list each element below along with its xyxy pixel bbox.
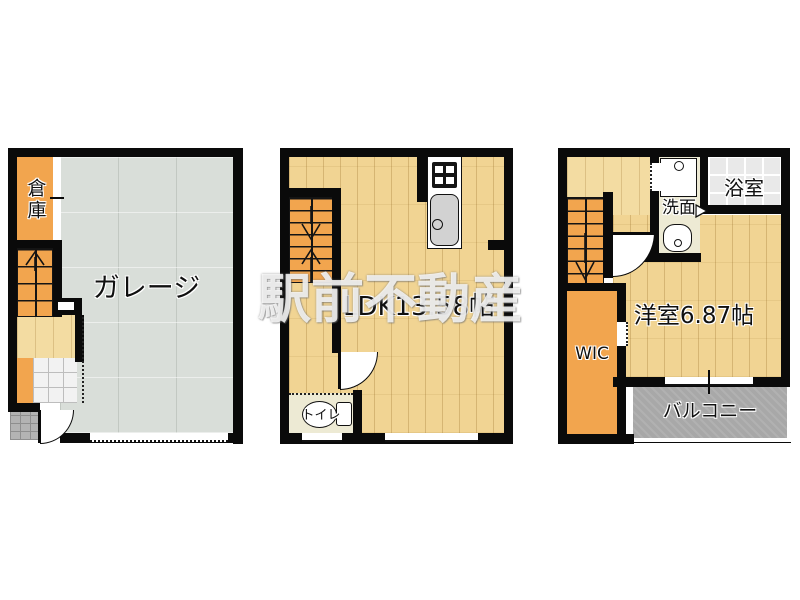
wall-segment [8, 403, 40, 412]
window-opening [385, 433, 478, 442]
washbasin-icon [660, 158, 697, 197]
balcony-sill [633, 438, 791, 443]
wall-segment [8, 240, 62, 248]
wall-segment [8, 148, 17, 412]
wall-segment [603, 192, 613, 278]
wall-segment [280, 148, 513, 157]
entrance-door-leaf [38, 410, 41, 443]
faucet-icon [432, 219, 443, 230]
stairs-up-arrow-icon [22, 250, 48, 272]
balcony-label: バルコニー [633, 396, 787, 423]
garage-shutter-opening [90, 433, 228, 442]
bathroom-label: 浴室 [702, 172, 786, 201]
watermark: 駅前不動産 [258, 270, 530, 334]
wall-segment [558, 434, 634, 444]
wall-segment [700, 205, 790, 214]
toilet-bowl-icon [663, 224, 692, 252]
wall-segment [353, 390, 362, 433]
washroom-label: 洗面 [650, 193, 708, 218]
faucet-icon [674, 161, 684, 171]
washroom-door-opening [650, 163, 661, 191]
ldk-door-leaf [338, 352, 341, 389]
entry-tile-floor [33, 358, 77, 403]
floor-plan-1f: ガレージ 倉庫 [8, 148, 243, 444]
wall-segment [417, 157, 427, 202]
stairs-down-arrow-icon [298, 206, 324, 242]
floor-plan-3f: 洗面 浴室 洋室6.87帖 WIC バルコニー [558, 148, 793, 444]
garage-label: ガレージ [60, 266, 233, 305]
wall-segment [558, 148, 790, 157]
wall-segment [8, 148, 243, 157]
floorplan-image: ガレージ 倉庫 [0, 0, 800, 600]
wall-segment [280, 188, 341, 197]
western-room-label: 洋室6.87帖 [618, 296, 770, 330]
toilet-label: トイレ [289, 404, 353, 423]
wall-segment [233, 148, 243, 444]
toilet-drain-icon [674, 239, 682, 247]
window-opening [302, 433, 342, 442]
entrance-porch [10, 412, 38, 440]
window-tick [708, 370, 710, 394]
storage-label: 倉庫 [19, 162, 53, 238]
kitchen-sink-icon [430, 194, 459, 246]
wall-segment [643, 253, 701, 262]
wall-segment [488, 240, 505, 250]
wall-segment [558, 148, 567, 444]
bedroom-door-leaf [613, 232, 654, 235]
stairs-down-arrow-icon [573, 233, 598, 283]
wall-segment [558, 283, 626, 291]
stove-icon [432, 162, 457, 188]
shoe-cabinet [17, 358, 33, 403]
partition-dotted-line [82, 317, 84, 403]
wic-label: WIC [567, 344, 617, 364]
entry-hall [17, 315, 84, 358]
